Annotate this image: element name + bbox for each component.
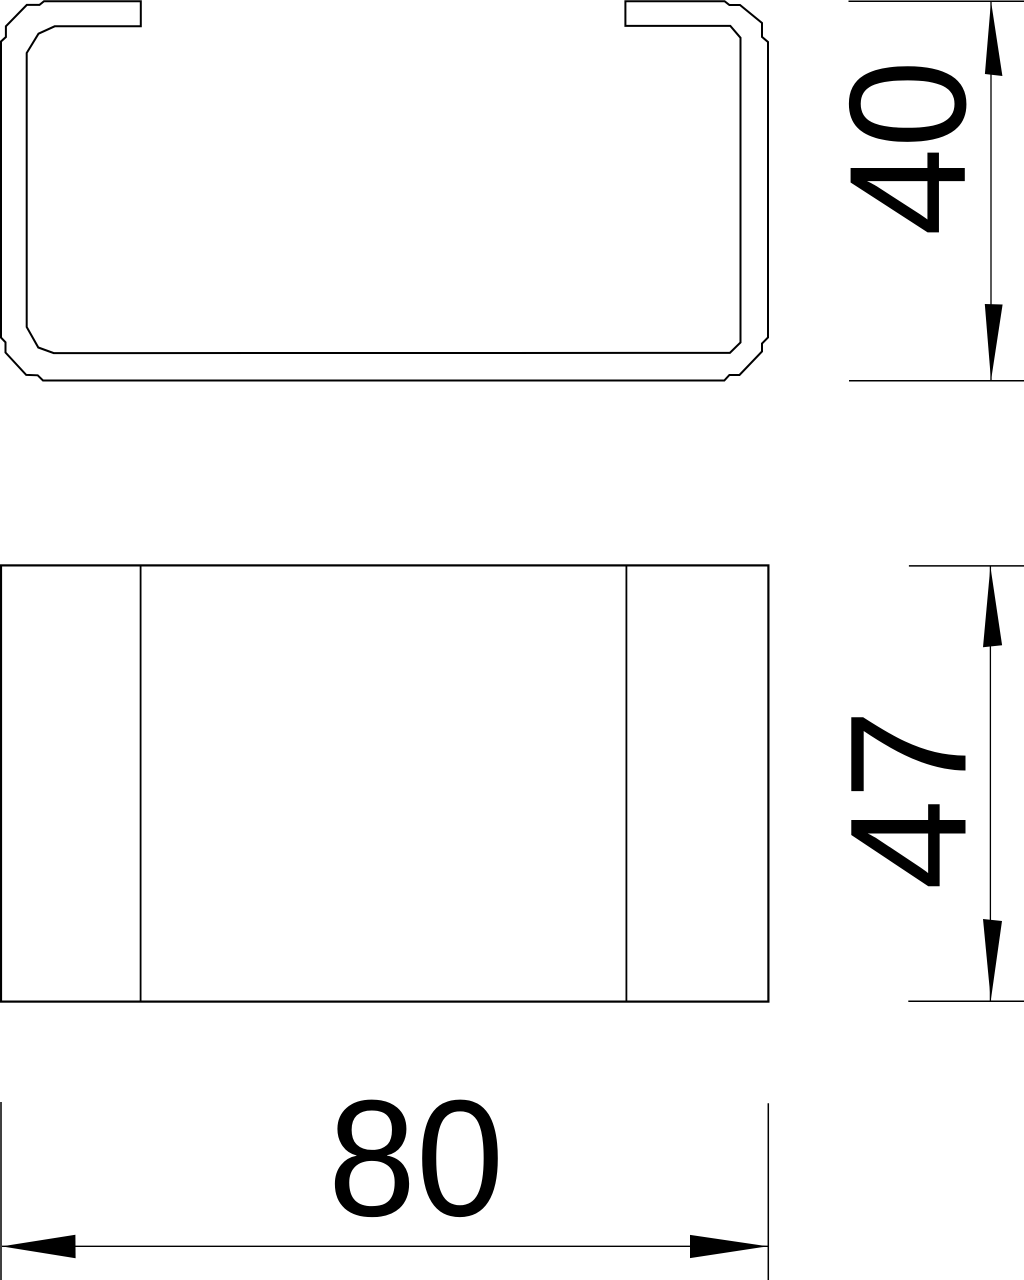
svg-text:80: 80 (328, 1067, 504, 1252)
svg-text:40: 40 (816, 60, 1001, 236)
svg-text:47: 47 (817, 709, 1002, 890)
